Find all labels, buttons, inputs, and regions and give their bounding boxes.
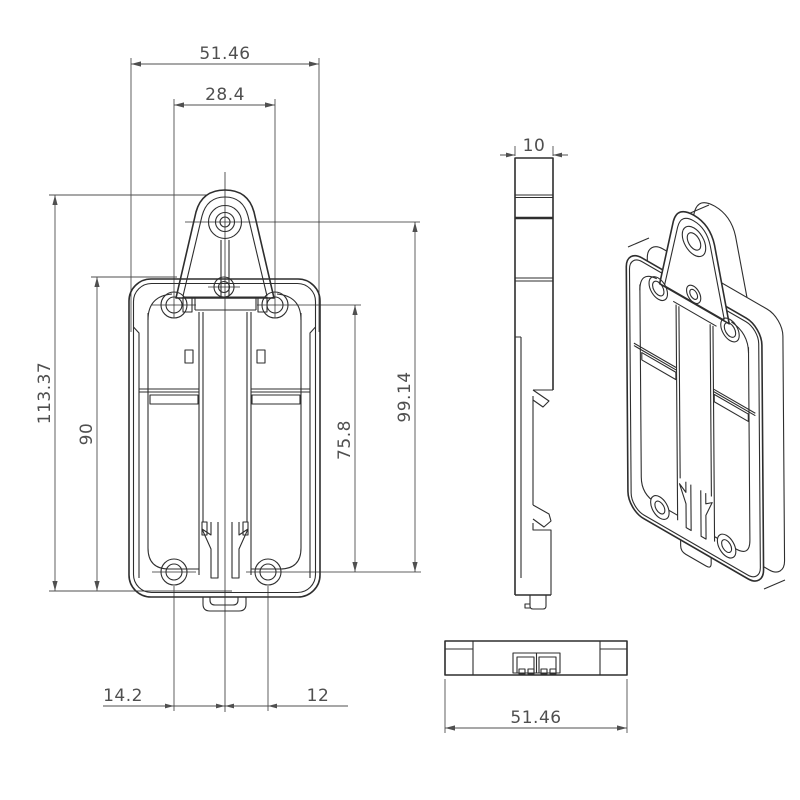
bottom-view-linework (445, 641, 627, 675)
dim-bottom-width: 51.46 (510, 708, 561, 728)
dim-bottom-right-offset: 12 (307, 686, 330, 706)
side-bottom-tab (530, 595, 546, 609)
bottom-view: 51.46 (445, 641, 627, 733)
dim-top-to-bottom-holes: 75.8 (335, 420, 355, 460)
front-rail-slot-right (252, 395, 300, 404)
dim-body-height: 90 (77, 423, 97, 446)
drawing-page: 51.46 28.4 113.37 90 75.8 99.14 14.2 12 (0, 0, 800, 800)
front-view-dimensions (49, 58, 418, 711)
dim-overall-width: 51.46 (199, 44, 250, 64)
isometric-view (626, 167, 785, 600)
front-view: 51.46 28.4 113.37 90 75.8 99.14 14.2 12 (35, 44, 421, 712)
front-din-clip-left (202, 522, 218, 578)
dim-overall-height: 113.37 (35, 362, 55, 424)
side-view-linework (515, 158, 553, 609)
dim-thickness: 10 (523, 136, 546, 156)
dim-tab-hole-to-bottom-holes: 99.14 (395, 371, 415, 422)
drawing-canvas: 51.46 28.4 113.37 90 75.8 99.14 14.2 12 (0, 0, 800, 800)
bottom-connector (513, 653, 560, 674)
dim-top-hole-spacing: 28.4 (205, 85, 245, 105)
side-view: 10 (500, 136, 568, 609)
front-rail-slot-left (150, 395, 198, 404)
front-din-clip-right (232, 522, 248, 578)
dim-bottom-left-offset: 14.2 (103, 686, 143, 706)
front-body-outline (129, 279, 320, 597)
